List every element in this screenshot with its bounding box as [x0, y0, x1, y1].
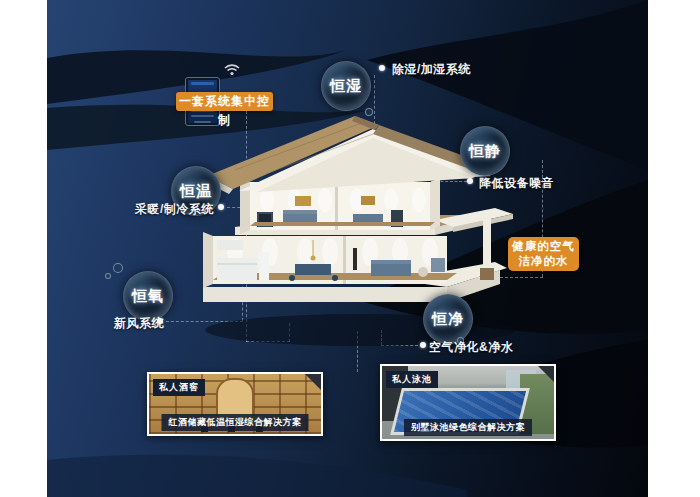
- photo-caption-pool: 别墅泳池绿色综合解决方案: [404, 419, 532, 436]
- dot-hengshi: [379, 65, 385, 71]
- photo-pool[interactable]: 私人泳池 别墅泳池绿色综合解决方案: [380, 364, 556, 441]
- health-callout-box: 健康的空气 洁净的水: [508, 237, 579, 271]
- desc-hengshi: 除湿/加湿系统: [392, 61, 471, 78]
- bubble-hengyang-label: 恒氧: [132, 287, 164, 306]
- bubble-hengjing2-label: 恒净: [432, 310, 464, 329]
- health-line1: 健康的空气: [508, 239, 579, 254]
- bubble-hengwen-label: 恒温: [180, 182, 212, 201]
- mini-bubble: [105, 273, 111, 279]
- photo-tag-pool: 私人泳池: [386, 371, 438, 388]
- dot-hengjing: [467, 178, 473, 184]
- photo-caption-wine: 红酒储藏低温恒湿综合解决方案: [162, 414, 309, 431]
- dot-hengyang: [157, 318, 163, 324]
- mini-bubble: [365, 108, 373, 116]
- dot-hengjing2: [420, 342, 426, 348]
- corner-ribbon: [305, 374, 321, 390]
- bubble-hengshi: 恒湿: [321, 61, 371, 111]
- mini-bubble: [113, 263, 123, 273]
- desc-hengyang: 新风系统: [114, 315, 164, 332]
- scene-background: 一套系统集中控制 健康的空气 洁净的水 恒湿 除湿/加湿系统 恒静 降低设备噪音…: [47, 0, 648, 497]
- photo-wine-cellar[interactable]: 私人酒窖 红酒储藏低温恒湿综合解决方案: [147, 372, 323, 436]
- corner-ribbon: [538, 366, 554, 382]
- phone-row: [194, 121, 211, 123]
- desc-hengjing2: 空气净化&净水: [429, 339, 513, 356]
- desc-hengjing: 降低设备噪音: [479, 175, 554, 192]
- bubble-hengjing: 恒静: [460, 126, 510, 176]
- photo-tag-wine: 私人酒窖: [153, 379, 205, 396]
- infographic-canvas: 一套系统集中控制 健康的空气 洁净的水 恒湿 除湿/加湿系统 恒静 降低设备噪音…: [0, 0, 700, 497]
- wifi-icon: [223, 61, 241, 76]
- dot-hengwen: [218, 204, 224, 210]
- phone-titlebar: [191, 82, 214, 85]
- bubble-hengyang: 恒氧: [123, 271, 173, 321]
- bubble-hengshi-label: 恒湿: [330, 77, 362, 96]
- phone-row: [191, 115, 214, 117]
- health-line2: 洁净的水: [508, 254, 579, 269]
- control-callout-box: 一套系统集中控制: [176, 92, 273, 111]
- bubble-hengjing2: 恒净: [423, 294, 473, 344]
- desc-hengwen: 采暖/制冷系统: [135, 201, 214, 218]
- bubble-hengjing-label: 恒静: [469, 142, 501, 161]
